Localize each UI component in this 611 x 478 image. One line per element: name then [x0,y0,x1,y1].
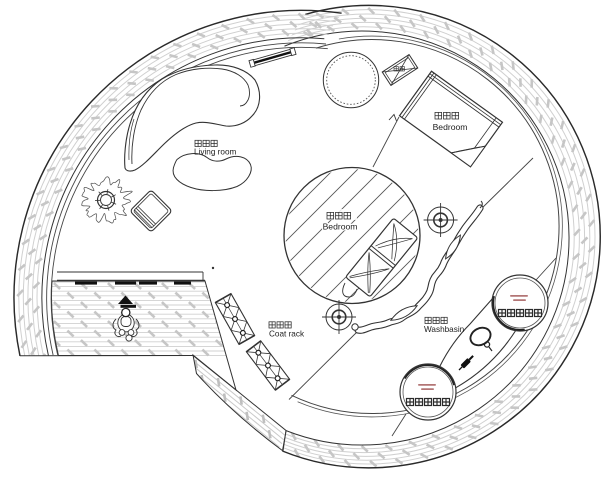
svg-text:Bedroom: Bedroom [433,122,468,132]
svg-text:Washbasin: Washbasin [424,325,465,334]
svg-text:Living room: Living room [194,148,237,157]
svg-text:Bedroom: Bedroom [323,222,358,232]
svg-text:Coat rack: Coat rack [269,330,305,339]
